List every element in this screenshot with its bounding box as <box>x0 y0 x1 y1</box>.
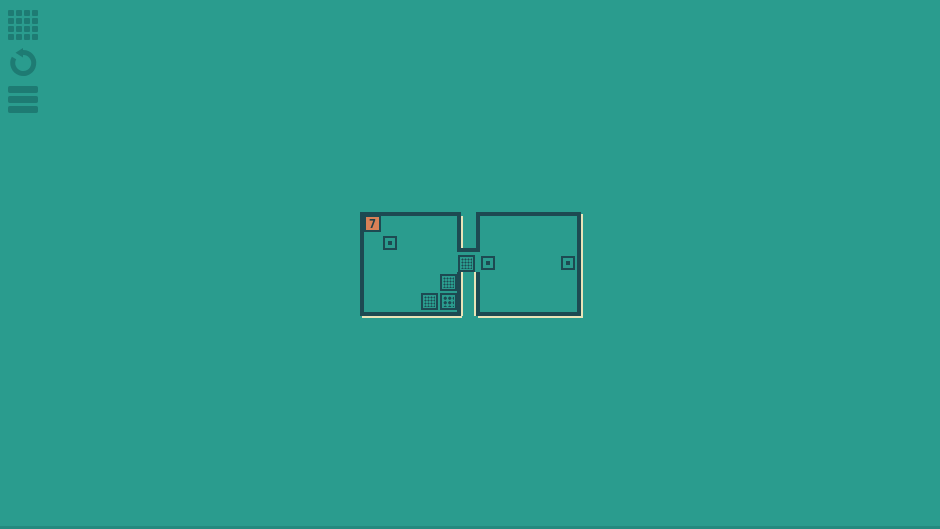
game-background: { "colors": { "bg": "#2a9c8e", "wall": "… <box>0 0 940 529</box>
level-select-button[interactable] <box>8 10 38 40</box>
shadow-slot-left-highlight <box>461 272 463 316</box>
shadow-notch-left-highlight <box>461 216 463 248</box>
wall-right-room-top <box>476 212 581 216</box>
hole-bold <box>440 293 457 310</box>
restart-button[interactable] <box>8 48 38 78</box>
shadow-slot-right-highlight <box>474 272 476 316</box>
hole-fine <box>458 255 475 272</box>
grid-icon <box>8 10 38 40</box>
socket-dot <box>388 241 392 245</box>
wall-slot-right <box>476 272 480 316</box>
shadow-right-room-right-shadow <box>581 214 583 318</box>
wall-notch-right <box>476 212 480 252</box>
socket-dot <box>566 261 570 265</box>
menu-button[interactable] <box>8 86 38 116</box>
shadow-right-room-bottom-shadow <box>478 316 583 318</box>
restart-icon <box>8 48 38 78</box>
menu-icon <box>8 86 38 113</box>
hole-fine <box>421 293 438 310</box>
dot-socket <box>481 256 495 270</box>
puzzle-board: 7 <box>357 210 587 322</box>
hole-fine <box>440 274 457 291</box>
dot-socket <box>561 256 575 270</box>
number-tile[interactable]: 7 <box>364 215 381 232</box>
socket-dot <box>486 261 490 265</box>
dot-socket <box>383 236 397 250</box>
shadow-left-room-bottom-shadow <box>362 316 462 318</box>
